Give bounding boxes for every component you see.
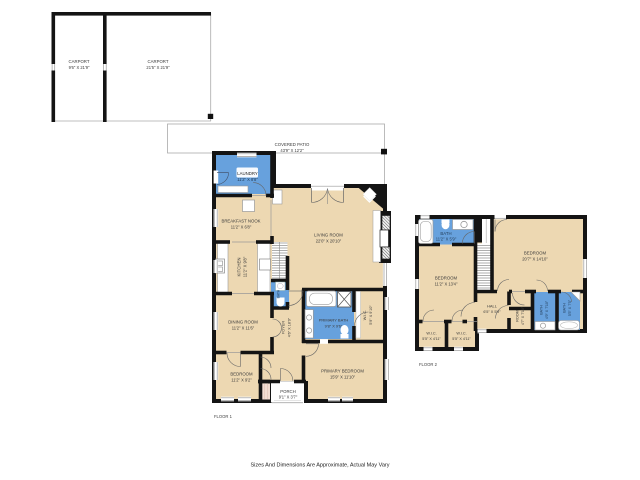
svg-text:FOYER: FOYER [281,321,286,335]
svg-text:W.I.C.: W.I.C. [426,332,436,336]
svg-text:4'7" X 7'10": 4'7" X 7'10" [521,306,525,325]
svg-text:PORCH: PORCH [280,389,296,394]
svg-text:BATH: BATH [440,231,451,236]
svg-text:COVERED PATIO: COVERED PATIO [275,142,310,147]
svg-text:11'2" X 9'2": 11'2" X 9'2" [231,378,252,383]
svg-text:11'2" X 5'9": 11'2" X 5'9" [436,237,457,242]
svg-text:KITCHEN: KITCHEN [237,258,242,277]
svg-text:5'5" X 7'5": 5'5" X 7'5" [568,299,572,316]
svg-text:FLOOR 1: FLOOR 1 [214,414,233,419]
svg-text:11'2" X 13'4": 11'2" X 13'4" [435,282,458,287]
svg-text:BEDROOM: BEDROOM [435,276,458,281]
svg-text:ROOM: ROOM [516,310,520,321]
svg-text:9'6" X 21'9": 9'6" X 21'9" [69,65,90,70]
svg-text:DINING ROOM: DINING ROOM [228,320,258,325]
svg-text:BATH: BATH [563,303,567,313]
svg-text:BATH: BATH [277,289,281,298]
svg-text:LAUNDRY: LAUNDRY [237,171,258,176]
svg-text:15'9" X 11'10": 15'9" X 11'10" [330,375,356,380]
svg-text:W.I.C.: W.I.C. [456,332,466,336]
svg-text:CARPORT: CARPORT [148,59,169,64]
svg-text:11'2" X 11'6": 11'2" X 11'6" [232,326,255,331]
svg-text:PRIMARY BEDROOM: PRIMARY BEDROOM [321,369,364,374]
svg-text:11'2" X 9'8": 11'2" X 9'8" [243,256,248,277]
svg-text:5'5" X 4'11": 5'5" X 4'11" [452,337,471,341]
svg-text:HALL: HALL [487,304,498,309]
svg-text:22'0" X 20'10": 22'0" X 20'10" [316,239,342,244]
svg-text:11'2" X 6'8": 11'2" X 6'8" [231,225,252,230]
svg-text:BEDROOM: BEDROOM [524,251,547,256]
svg-text:CARPORT: CARPORT [69,59,90,64]
svg-text:BATH: BATH [540,305,544,315]
svg-text:5'9" X 9'10": 5'9" X 9'10" [369,305,373,325]
svg-text:W.I.C.: W.I.C. [362,310,367,321]
svg-text:5'5" X 4'11": 5'5" X 4'11" [422,337,441,341]
svg-text:11'2" X 8'8": 11'2" X 8'8" [237,177,258,182]
svg-text:43'9" X 12'2": 43'9" X 12'2" [280,148,304,153]
svg-text:4'9" X 7'10": 4'9" X 7'10" [545,300,549,319]
svg-text:4'6" X 18'9": 4'6" X 18'9" [288,317,292,337]
svg-text:FLOOR 2: FLOOR 2 [419,362,438,367]
svg-text:21'5" X 21'9": 21'5" X 21'9" [146,65,170,70]
svg-text:BREAKFAST NOOK: BREAKFAST NOOK [221,219,260,224]
svg-text:BEDROOM: BEDROOM [230,372,253,377]
svg-text:Sizes And Dimensions Are Appro: Sizes And Dimensions Are Approximate, Ac… [251,463,390,469]
svg-text:LIVING ROOM: LIVING ROOM [314,233,343,238]
svg-text:9'8" X 9'6": 9'8" X 9'6" [325,324,343,329]
svg-text:9'1" X 3'7": 9'1" X 3'7" [279,395,298,400]
svg-text:6'5" X 5'9": 6'5" X 5'9" [483,310,501,314]
svg-text:20'7" X 14'10": 20'7" X 14'10" [522,257,548,262]
svg-text:PRIMARY BATH: PRIMARY BATH [319,318,349,323]
